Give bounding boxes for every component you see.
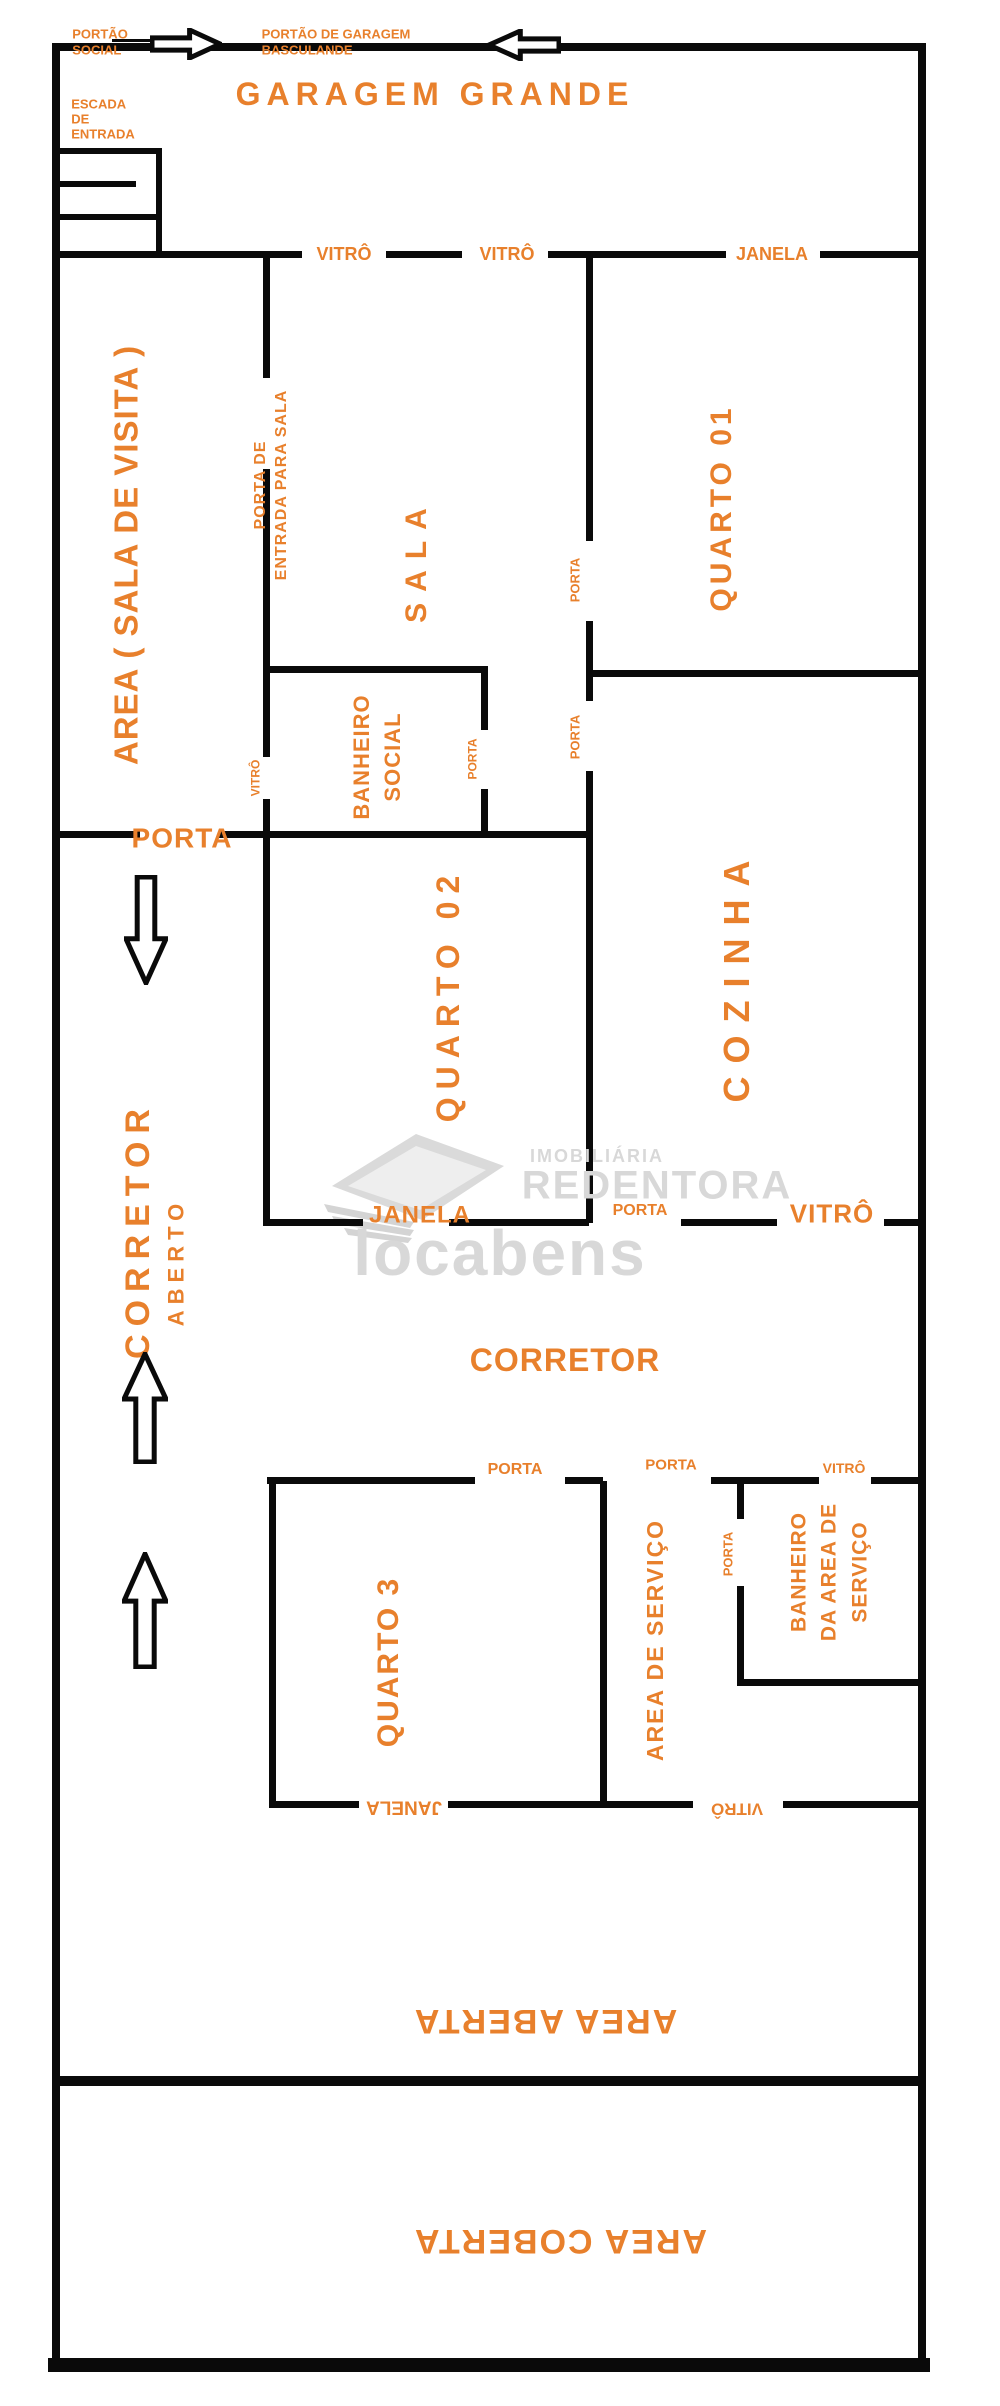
wall-segment (681, 1219, 777, 1226)
wall-segment (737, 1481, 744, 1519)
wall-segment (783, 1801, 920, 1808)
watermark-locabens: locabens (353, 1218, 646, 1290)
wall-segment (548, 251, 726, 258)
wall-segment (263, 251, 270, 378)
arrow-up-icon-1 (122, 1352, 168, 1464)
wall-segment (267, 1477, 475, 1484)
label-area-de-servico: AREA DE SERVIÇO (643, 1519, 669, 1761)
wall-segment (918, 43, 926, 2370)
arrow-right-icon (150, 28, 222, 60)
wall-segment (481, 666, 488, 730)
label-area-coberta: AREA COBERTA (413, 2222, 707, 2260)
label-banheiro-social: BANHEIRO SOCIAL (347, 694, 409, 819)
label-quarto-3: QUARTO 3 (372, 1577, 406, 1747)
wall-segment (600, 1481, 607, 1808)
label-vitro-garagem-1: VITRÔ (316, 244, 371, 264)
label-escada-de-entrada: ESCADA DE ENTRADA (71, 98, 135, 143)
wall-segment (711, 1477, 819, 1484)
label-porta-area-corredor: PORTA (132, 822, 233, 853)
wall-segment (48, 2358, 930, 2372)
label-corretor: CORRETOR (470, 1343, 661, 1379)
wall-segment (269, 1801, 359, 1808)
wall-segment (266, 666, 488, 673)
arrow-down-icon (124, 875, 168, 985)
floor-plan: PORTÃO SOCIALPORTÃO DE GARAGEM BASCULAND… (0, 0, 1000, 2406)
label-vitro-cozinha: VITRÔ (790, 1199, 874, 1228)
label-vitro-banheiro-servico: VITRÔ (823, 1461, 866, 1477)
wall-segment (871, 1477, 920, 1484)
wall-segment (56, 181, 136, 187)
arrow-left-icon (487, 29, 561, 61)
label-corretor-aberto: CORRETOR (119, 1101, 157, 1359)
label-porta-area-servico: PORTA (645, 1458, 696, 1475)
wall-segment (820, 251, 920, 258)
label-garagem-grande: GARAGEM GRANDE (236, 77, 635, 113)
label-area-aberta: AREA ABERTA (413, 2002, 677, 2040)
wall-segment (56, 148, 162, 154)
label-janela-quarto3: JANELA (366, 1796, 442, 1817)
label-porta-banheiro-social: PORTA (466, 738, 479, 779)
wall-segment (52, 2076, 920, 2086)
label-quarto-02: QUARTO 02 (431, 868, 467, 1123)
label-porta-sala-quarto01: PORTA (569, 558, 584, 603)
wall-segment (269, 1477, 276, 1808)
wall-segment (156, 148, 162, 257)
wall-segment (448, 1801, 693, 1808)
wall-segment (56, 214, 156, 220)
wall-segment (218, 831, 590, 838)
label-janela-quarto01: JANELA (736, 244, 808, 264)
label-vitro-area-servico: VITRÔ (711, 1799, 763, 1818)
label-portao-social: PORTÃO SOCIAL (72, 26, 128, 57)
label-banheiro-area-servico: BANHEIRO DA AREA DE SERVIÇO (784, 1503, 875, 1641)
label-aberto: ABERTO (165, 1198, 190, 1327)
wall-segment (737, 1679, 922, 1686)
wall-segment (593, 670, 920, 677)
label-portao-garagem-basculande: PORTÃO DE GARAGEM BASCULANDE (262, 26, 411, 57)
wall-segment (565, 1477, 603, 1484)
label-porta-banheiro-servico: PORTA (722, 1532, 737, 1577)
wall-segment (586, 621, 593, 701)
label-porta-hall-cozinha: PORTA (569, 715, 584, 760)
label-cozinha: COZINHA (717, 848, 757, 1103)
label-quarto-01: QUARTO 01 (705, 404, 739, 611)
wall-segment (263, 838, 270, 1226)
label-porta-quarto3: PORTA (488, 1461, 543, 1479)
arrow-up-icon-2 (122, 1552, 168, 1669)
wall-segment (263, 1219, 363, 1226)
label-area-sala-de-visita: AREA ( SALA DE VISITA ) (109, 345, 146, 765)
wall-segment (386, 251, 462, 258)
wall-segment (586, 251, 593, 541)
label-sala: SALA (400, 497, 434, 623)
wall-segment (884, 1219, 920, 1226)
wall-segment (52, 831, 140, 838)
watermark-redentora: REDENTORA (522, 1164, 793, 1209)
wall-segment (737, 1586, 744, 1686)
label-vitro-garagem-2: VITRÔ (479, 244, 534, 264)
label-vitro-banheiro-social: VITRÔ (249, 760, 262, 797)
wall-segment (52, 43, 60, 2370)
label-porta-entrada-para-sala: PORTA DE ENTRADA PARA SALA (251, 390, 293, 581)
